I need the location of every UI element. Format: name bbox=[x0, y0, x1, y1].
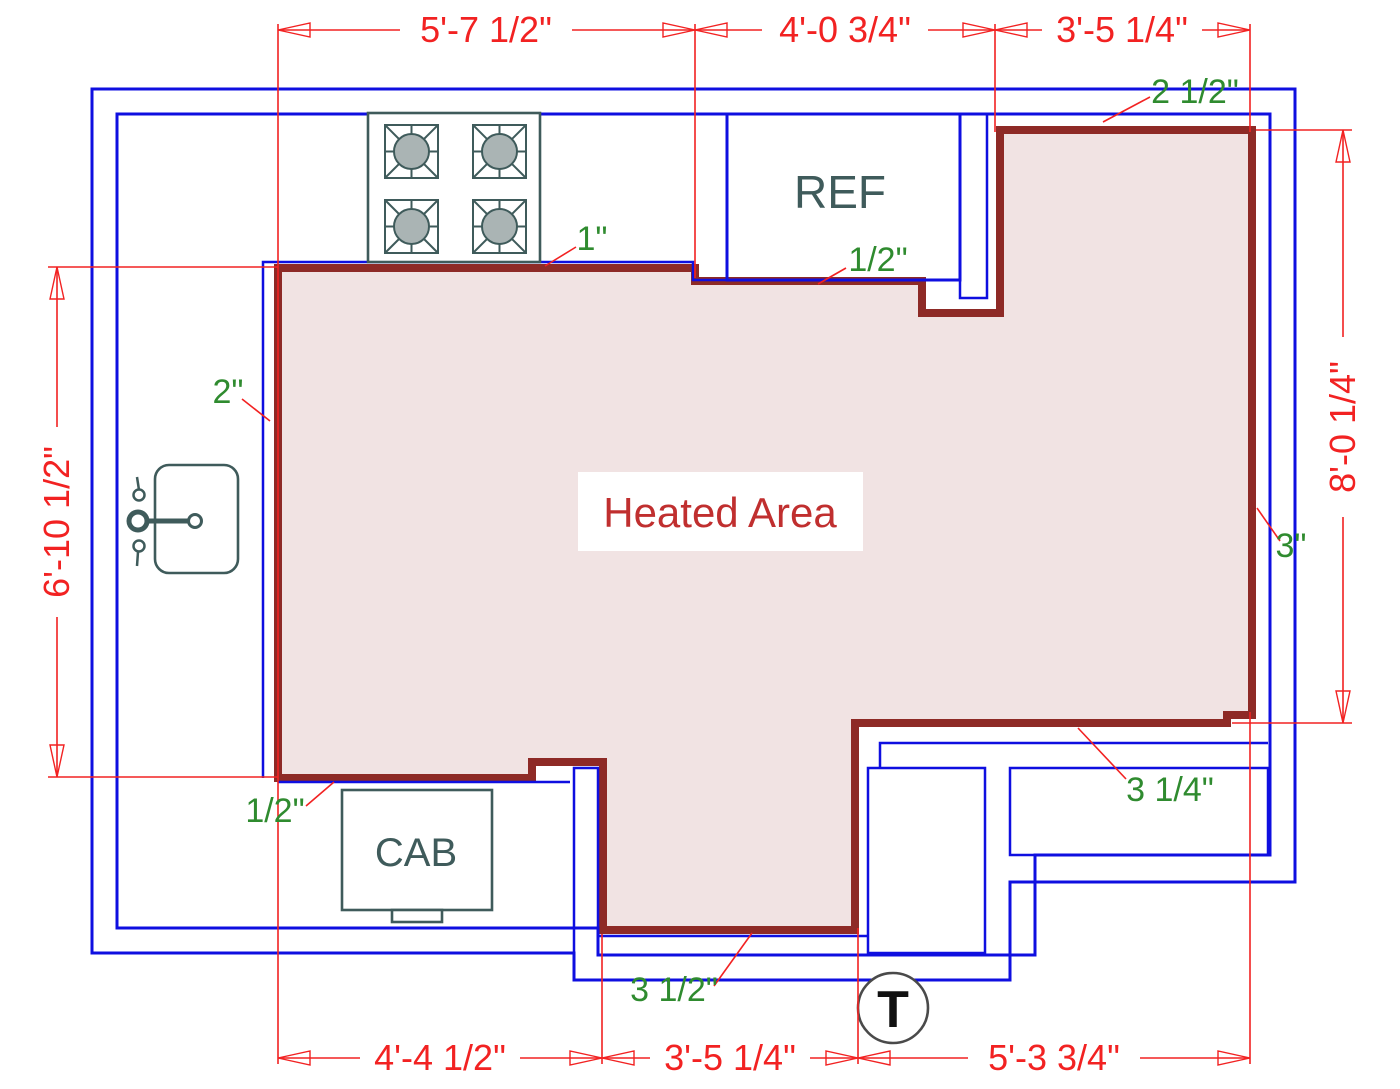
sink-handle-cold-stem bbox=[137, 552, 138, 566]
leader-line bbox=[1103, 97, 1150, 122]
callout-ref-wall: 1/2" bbox=[848, 241, 907, 279]
dim-text-top-1: 5'-7 1/2" bbox=[420, 9, 552, 50]
stove-burner bbox=[385, 200, 438, 253]
heated-area-label: Heated Area bbox=[603, 489, 837, 536]
cabinet: CAB bbox=[342, 790, 492, 922]
bottom-right-wall-face bbox=[880, 743, 1268, 768]
dim-text-top-3: 3'-5 1/4" bbox=[1056, 9, 1188, 50]
thermostat: T bbox=[858, 973, 928, 1043]
floorplan-drawing: REF CAB T Heated Area bbox=[0, 0, 1400, 1089]
refrigerator: REF bbox=[727, 114, 960, 280]
sink-spout-end bbox=[189, 515, 202, 528]
dim-text-bottom-3: 5'-3 3/4" bbox=[988, 1037, 1120, 1078]
bottom-right-tall-box bbox=[868, 768, 985, 953]
dim-text-top-2: 4'-0 3/4" bbox=[779, 9, 911, 50]
thermostat-label: T bbox=[877, 981, 909, 1039]
dim-text-bottom-1: 4'-4 1/2" bbox=[374, 1037, 506, 1078]
ref-right-channel bbox=[960, 114, 987, 298]
callout-cab-wall: 1/2" bbox=[245, 792, 304, 830]
cab-tab bbox=[392, 910, 442, 922]
callout-bottom-wall: 3 1/2" bbox=[630, 971, 718, 1009]
sink-faucet-base bbox=[129, 512, 147, 530]
stove-burner bbox=[385, 125, 438, 178]
stove-burner bbox=[473, 200, 526, 253]
dimension-bottom: 4'-4 1/2" 3'-5 1/4" 5'-3 3/4" bbox=[278, 1037, 1250, 1078]
dimension-right: 8'-0 1/4" bbox=[1322, 130, 1363, 723]
sink-handle-hot bbox=[134, 490, 145, 501]
leader-line bbox=[242, 399, 270, 421]
leader-line bbox=[714, 933, 752, 986]
callout-top-wall: 2 1/2" bbox=[1151, 73, 1239, 111]
sink-handle-cold bbox=[134, 541, 145, 552]
leader-line bbox=[306, 782, 334, 806]
sink bbox=[129, 465, 238, 573]
callout-bottom-right-wall: 3 1/4" bbox=[1126, 771, 1214, 809]
floorplan-canvas: REF CAB T Heated Area bbox=[0, 0, 1400, 1089]
stove-burner bbox=[473, 125, 526, 178]
dimension-top: 5'-7 1/2" 4'-0 3/4" 3'-5 1/4" bbox=[278, 9, 1250, 50]
leader-line bbox=[1078, 728, 1126, 779]
cab-label: CAB bbox=[375, 831, 457, 875]
dim-text-right: 8'-0 1/4" bbox=[1322, 361, 1363, 493]
stove bbox=[368, 113, 540, 262]
dim-text-bottom-2: 3'-5 1/4" bbox=[664, 1037, 796, 1078]
callout-right-wall: 3" bbox=[1276, 527, 1307, 565]
callout-stove-wall: 1" bbox=[577, 220, 608, 258]
heated-area-label-group: Heated Area bbox=[578, 472, 863, 551]
sink-handle-hot-stem bbox=[137, 477, 139, 490]
dimension-left: 6'-10 1/2" bbox=[36, 267, 77, 777]
callout-left-wall: 2" bbox=[213, 373, 244, 411]
ref-label: REF bbox=[794, 166, 886, 218]
dim-text-left: 6'-10 1/2" bbox=[36, 446, 77, 598]
stove-outline bbox=[368, 113, 540, 262]
